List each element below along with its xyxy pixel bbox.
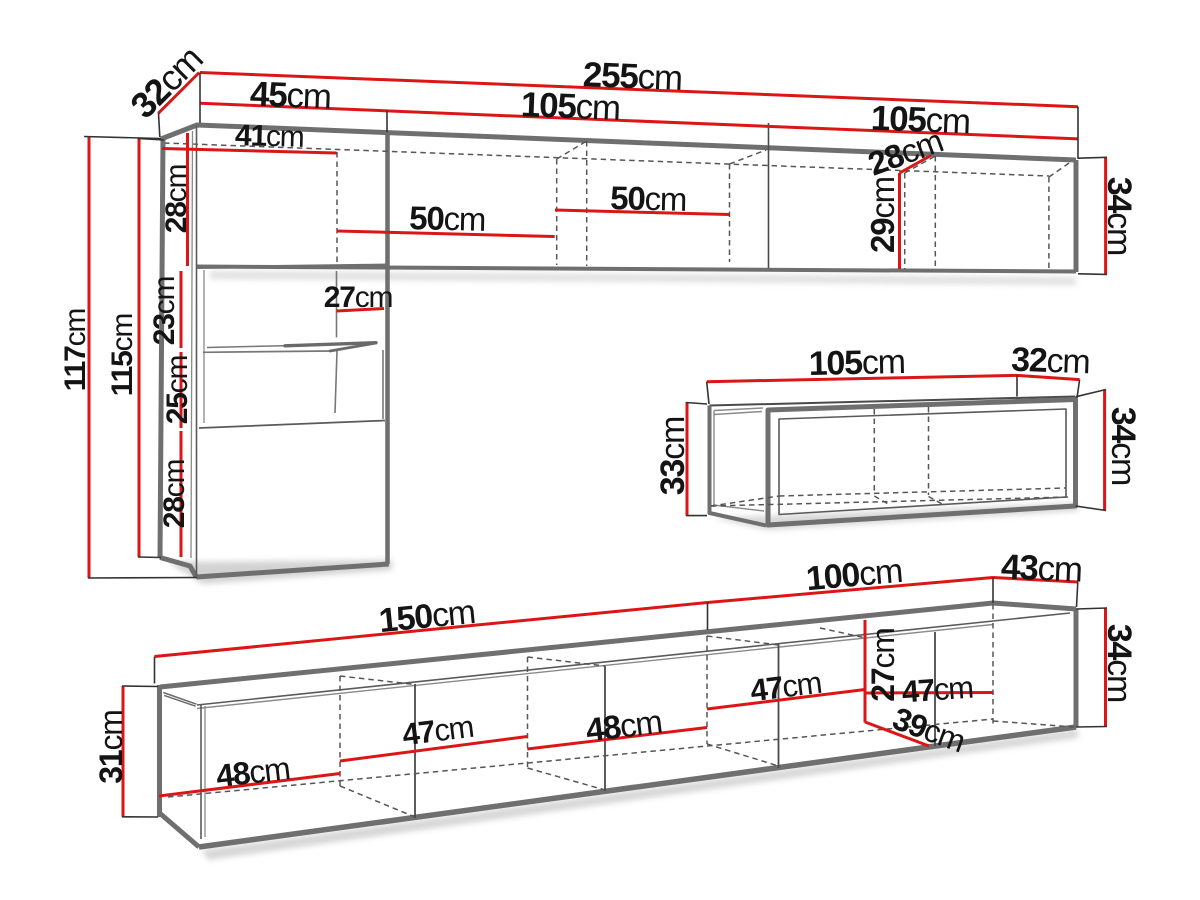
svg-text:23cm: 23cm [148, 277, 181, 346]
svg-text:34cm: 34cm [1100, 624, 1138, 702]
svg-text:34cm: 34cm [1100, 177, 1138, 255]
svg-text:43cm: 43cm [1000, 547, 1082, 589]
svg-text:117cm: 117cm [59, 309, 92, 392]
svg-text:105cm: 105cm [520, 85, 620, 128]
svg-text:27cm: 27cm [324, 281, 393, 314]
svg-text:50cm: 50cm [610, 179, 687, 218]
svg-text:28cm: 28cm [158, 460, 191, 529]
svg-text:115cm: 115cm [106, 314, 139, 397]
svg-text:33cm: 33cm [654, 417, 692, 495]
svg-text:105cm: 105cm [808, 343, 905, 383]
svg-text:29cm: 29cm [864, 177, 901, 253]
svg-text:45cm: 45cm [249, 74, 331, 116]
svg-text:28cm: 28cm [160, 165, 193, 234]
svg-text:25cm: 25cm [161, 356, 194, 425]
svg-text:27cm: 27cm [865, 628, 901, 701]
svg-text:31cm: 31cm [93, 710, 129, 783]
svg-text:34cm: 34cm [1104, 407, 1142, 485]
svg-text:32cm: 32cm [1011, 341, 1091, 382]
svg-text:50cm: 50cm [409, 199, 486, 238]
svg-text:41cm: 41cm [235, 119, 305, 154]
